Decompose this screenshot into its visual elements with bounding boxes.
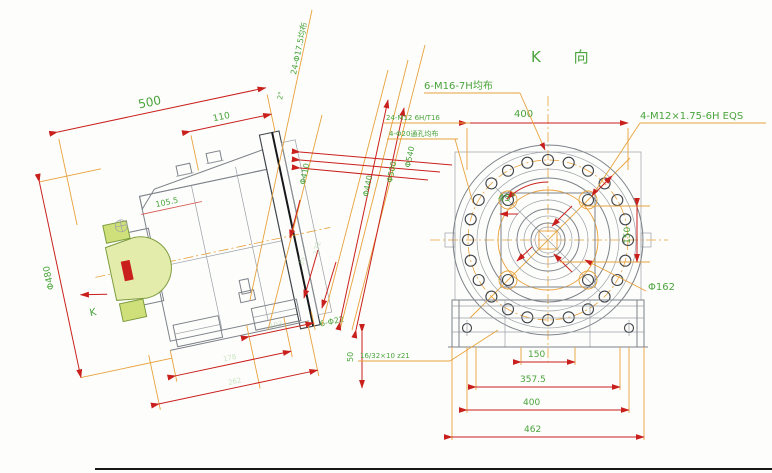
dia-500-label: Φ500 [385, 160, 398, 183]
engineering-drawing: 500 110 105.5 Φ480 K [0, 0, 772, 473]
note-m12-label: 4-M12×1.75-6H EQS [640, 111, 743, 122]
dim-110-label: 110 [212, 111, 231, 124]
dim-35-label: 35 [297, 256, 307, 266]
dim-bottom-stack: 150 357.5 400 462 [452, 347, 644, 440]
note-m12-leader: 4-M12×1.75-6H EQS [592, 111, 766, 196]
dim-500-label: 500 [137, 93, 162, 111]
dim-bottom-462-label: 462 [524, 425, 541, 435]
dia-440-label: Φ440 [361, 174, 374, 197]
dim-foot1-label: 103 [269, 320, 284, 331]
dim-bottom-150-label: 150 [528, 350, 545, 360]
note-tap-line1: 24-M12 6H/T16 [386, 114, 440, 122]
dim-bottom-400-label: 400 [523, 398, 540, 408]
note-tap-leader: 24-M12 6H/T16 4-Φ20通孔均布 [384, 114, 473, 203]
holes-24-note: 24-Φ17.5均布 [288, 21, 309, 75]
dia-162-label: Φ162 [648, 282, 675, 293]
dim-top-400-label: 400 [514, 109, 533, 120]
note-spline-label: 16/32×10 z21 [360, 352, 410, 360]
note-tap-line2: 4-Φ20通孔均布 [389, 129, 438, 138]
dia-410-label: Φ410 [298, 162, 311, 185]
dim-foot2-label: 178 [222, 353, 237, 364]
k-direction-label: K [89, 307, 98, 319]
left-view: 500 110 105.5 Φ480 K [12, 64, 360, 428]
dim-top-400: 400 [467, 109, 628, 170]
angle-45-label: 45° [498, 193, 516, 204]
dim-172-label: 172 [312, 241, 323, 256]
k-direction: K [81, 289, 112, 320]
right-view: 400 150 Φ162 150 35 [358, 80, 766, 440]
dim-50: 50 [346, 332, 362, 388]
k-view-title: K 向 [531, 48, 603, 66]
note-m16-label: 6-M16-7H均布 [424, 80, 493, 92]
dim-50-label: 50 [346, 352, 355, 362]
dim-foot3-label: 262 [227, 376, 242, 387]
dim-right-150-label: 150 [623, 227, 633, 244]
mounting-feet [165, 297, 309, 350]
taper-note: 2° [276, 91, 285, 100]
dia-480-label: Φ480 [42, 265, 57, 291]
dim-bottom-357-label: 357.5 [520, 375, 546, 385]
dia-540-label: Φ540 [403, 145, 416, 168]
drawing-canvas: 500 110 105.5 Φ480 K [0, 0, 772, 473]
note-spline-leader: 16/32×10 z21 [358, 330, 498, 361]
